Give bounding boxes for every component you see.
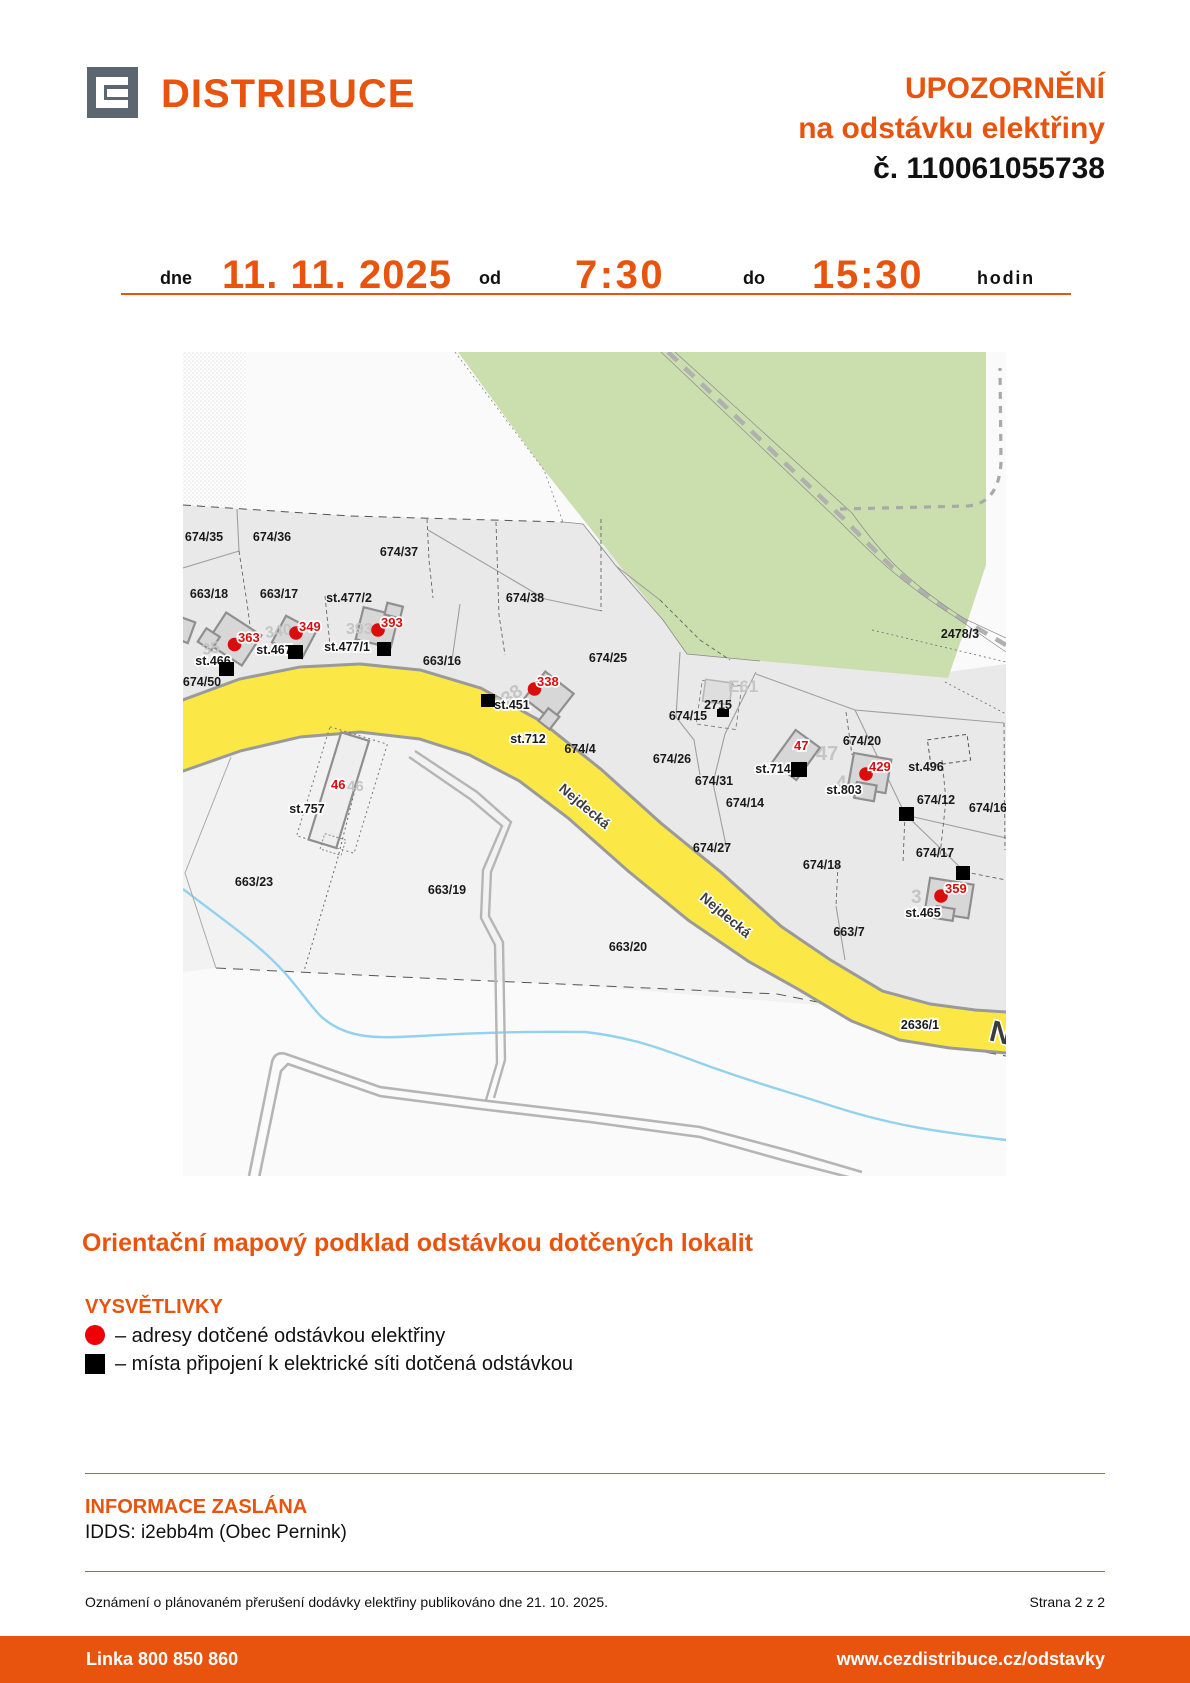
svg-text:674/35: 674/35 [185, 530, 223, 544]
svg-text:663/20: 663/20 [609, 940, 647, 954]
svg-text:359: 359 [945, 881, 967, 896]
svg-text:674/14: 674/14 [726, 796, 764, 810]
svg-text:st.757: st.757 [289, 802, 324, 816]
svg-text:393: 393 [381, 615, 403, 630]
svg-text:674/18: 674/18 [803, 858, 841, 872]
svg-text:674/15: 674/15 [669, 709, 707, 723]
svg-text:2636/1: 2636/1 [901, 1018, 939, 1032]
svg-text:674/26: 674/26 [653, 752, 691, 766]
svg-text:363: 363 [238, 630, 260, 645]
svg-text:674/27: 674/27 [693, 841, 731, 855]
svg-text:663/16: 663/16 [423, 654, 461, 668]
svg-text:st.477/1: st.477/1 [324, 640, 370, 654]
svg-text:663/19: 663/19 [428, 883, 466, 897]
svg-text:47: 47 [816, 743, 838, 765]
svg-text:674/4: 674/4 [564, 742, 595, 756]
svg-text:st.451: st.451 [494, 698, 529, 712]
svg-text:674/17: 674/17 [916, 846, 954, 860]
svg-text:st.712: st.712 [510, 732, 545, 746]
svg-text:674/16: 674/16 [969, 801, 1006, 815]
svg-text:338: 338 [537, 674, 559, 689]
svg-text:393: 393 [346, 621, 373, 638]
svg-text:674/50: 674/50 [183, 675, 221, 689]
svg-text:663/7: 663/7 [833, 925, 864, 939]
svg-text:674/37: 674/37 [380, 545, 418, 559]
svg-text:st.467: st.467 [256, 643, 291, 657]
svg-text:E61: E61 [728, 677, 758, 696]
svg-text:st.714: st.714 [755, 762, 790, 776]
svg-text:663/17: 663/17 [260, 587, 298, 601]
svg-text:2478/3: 2478/3 [941, 627, 979, 641]
svg-text:st.803: st.803 [826, 783, 861, 797]
svg-text:47: 47 [794, 738, 808, 753]
svg-text:674/25: 674/25 [589, 651, 627, 665]
svg-text:674/36: 674/36 [253, 530, 291, 544]
svg-text:674/12: 674/12 [917, 793, 955, 807]
svg-text:674/31: 674/31 [695, 774, 733, 788]
svg-text:st.496: st.496 [908, 760, 943, 774]
svg-text:st.465: st.465 [905, 906, 940, 920]
svg-text:663/18: 663/18 [190, 587, 228, 601]
svg-text:663/23: 663/23 [235, 875, 273, 889]
svg-text:674/38: 674/38 [506, 591, 544, 605]
svg-text:46: 46 [347, 778, 364, 795]
svg-text:3: 3 [911, 887, 922, 908]
svg-text:349: 349 [299, 619, 321, 634]
svg-text:st.477/2: st.477/2 [326, 591, 372, 605]
svg-text:46: 46 [331, 777, 345, 792]
svg-text:429: 429 [869, 759, 891, 774]
svg-text:674/20: 674/20 [843, 734, 881, 748]
